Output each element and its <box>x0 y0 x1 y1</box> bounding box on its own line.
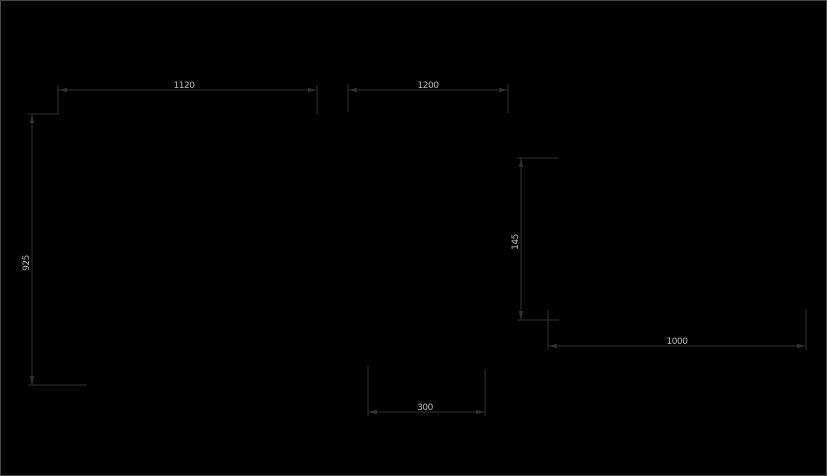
dimension-arrowhead-icon <box>30 376 34 385</box>
dimension-arrowhead-icon <box>58 88 67 92</box>
dimension-arrowhead-icon <box>30 114 34 123</box>
dimension-arrowhead-icon <box>499 88 508 92</box>
dimension-arrowhead-icon <box>548 344 557 348</box>
dimension-label: 1000 <box>667 337 689 347</box>
dimension-label: 300 <box>417 403 433 413</box>
dimension-label: 1200 <box>418 81 440 91</box>
cad-drawing: 112012009251451000300 <box>1 1 827 476</box>
dimension-arrowhead-icon <box>519 158 523 167</box>
cad-viewport: 112012009251451000300 <box>0 0 827 476</box>
dimension-label: 145 <box>511 234 521 250</box>
dimension-arrowhead-icon <box>519 311 523 320</box>
dimension-arrowhead-icon <box>308 88 317 92</box>
dimension-label: 1120 <box>174 81 196 91</box>
dimension-arrowhead-icon <box>368 410 377 414</box>
dimension-arrowhead-icon <box>797 344 806 348</box>
dimension-arrowhead-icon <box>348 88 357 92</box>
dimension-arrowhead-icon <box>476 410 485 414</box>
dimension-label: 925 <box>22 255 32 271</box>
